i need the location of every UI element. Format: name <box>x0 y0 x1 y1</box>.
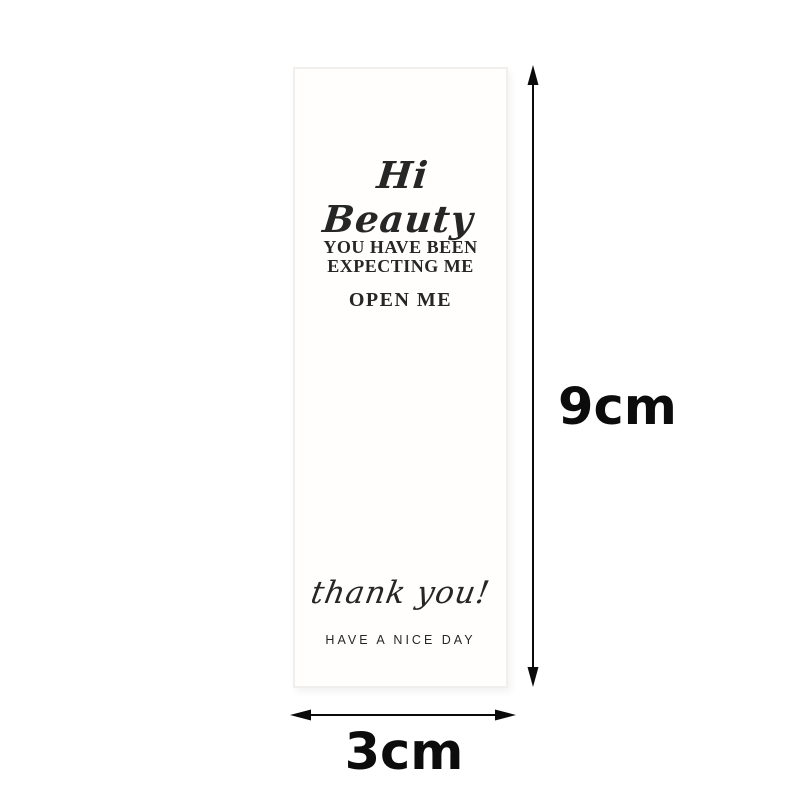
width-dimension-label: 3cm <box>329 727 479 778</box>
card-message-line1: YOU HAVE BEEN <box>295 238 506 257</box>
height-arrow-head-up <box>528 65 539 85</box>
card-open-label: OPEN ME <box>295 289 506 312</box>
card-message: YOU HAVE BEEN EXPECTING ME <box>295 238 506 276</box>
height-arrow-head-down <box>528 667 539 687</box>
product-dimension-mockup: Hi Beauty YOU HAVE BEEN EXPECTING ME OPE… <box>0 0 800 800</box>
height-dimension-label: 9cm <box>558 382 668 433</box>
sticker-card: Hi Beauty YOU HAVE BEEN EXPECTING ME OPE… <box>293 67 508 688</box>
card-greeting-script: Hi Beauty <box>290 153 510 241</box>
card-thanks-script: thank you! <box>292 575 509 611</box>
width-arrow-head-left <box>290 710 311 721</box>
height-dimension-arrow-icon <box>522 65 544 687</box>
card-footer-text: HAVE A NICE DAY <box>295 633 506 647</box>
card-message-line2: EXPECTING ME <box>295 257 506 276</box>
width-arrow-head-right <box>495 710 516 721</box>
